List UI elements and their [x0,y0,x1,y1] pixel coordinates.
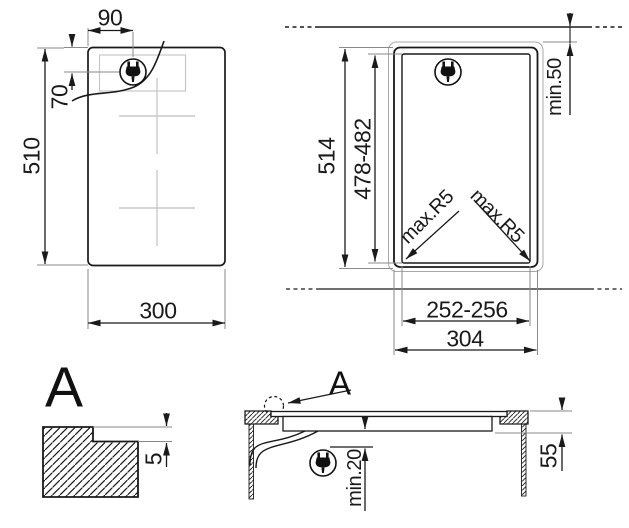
hob-body [283,417,492,432]
dim-clearance-below-label: min.20 [345,449,365,507]
dim-width-label: 300 [139,300,176,323]
dim-rebate-depth-label: 5 [143,453,166,465]
hob-glass-plate [271,412,507,417]
power-cable-curve [250,431,318,468]
power-plug-icon [120,59,146,85]
cabinet-wall-right [522,424,527,496]
dim-plug-offset-y-label: 70 [49,85,72,110]
section-view-figure [245,390,572,511]
dim-plug-offset-x-label: 90 [98,7,123,30]
power-plug-icon [310,450,336,476]
dim-510-geometry [37,48,88,265]
dim-depth-below-worktop-label: 55 [538,444,561,469]
detail-a-reference: A [329,367,351,400]
power-plug-icon [435,59,461,85]
dim-wall-clearance-label: min.50 [545,58,565,116]
detail-a-title: A [45,360,83,417]
dim-overall-width-label: 304 [446,328,483,351]
worktop-rebate-section [43,427,138,497]
dim-cutout-height-label: 478-482 [352,118,375,200]
dim-overall-height-label: 514 [316,137,339,174]
dim-cutout-width-label: 252-256 [426,299,508,322]
technical-drawing: 90 70 510 300 514 478-482 min.50 max.R5 … [0,0,629,528]
top-view-figure [37,28,225,329]
dim-height-label: 510 [21,137,44,174]
